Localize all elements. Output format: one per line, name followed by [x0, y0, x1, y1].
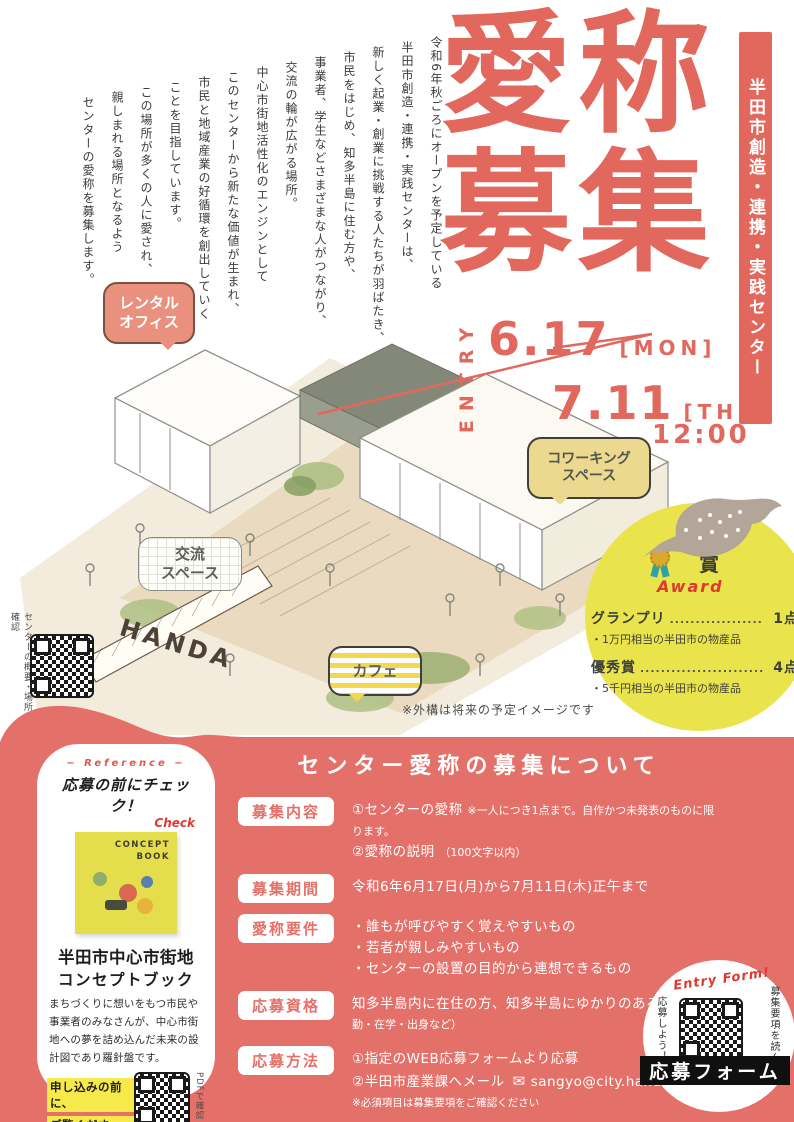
award-grand-prize-row: グランプリ .................. 1点	[591, 608, 794, 628]
requirement-bullet: ・若者が親しみやすいもの	[352, 938, 632, 959]
book-title-line2: コンセプトブック	[47, 968, 205, 990]
pdf-qr-code	[134, 1072, 190, 1122]
pdf-qr-caption: PDFで確認	[193, 1072, 205, 1122]
requirement-bullet: ・センターの設置の目的から連想できるもの	[352, 959, 632, 980]
content-line2-note: （100文字以内）	[439, 846, 526, 859]
row-requirements: 愛称要件 ・誰もが呼びやすく覚えやすいもの ・若者が親しみやすいもの ・センター…	[238, 914, 720, 980]
reference-headline: 応募の前にチェック！	[47, 774, 205, 816]
requirement-bullet: ・誰もが呼びやすく覚えやすいもの	[352, 917, 632, 938]
concept-book-cover: CONCEPT BOOK	[75, 832, 177, 934]
apply-note: ※必須項目は募集要項をご確認ください	[352, 1095, 707, 1111]
book-title-line1: 半田市中心市街地	[47, 944, 205, 968]
award-excellence-row: 優秀賞 ........................ 4点	[591, 657, 794, 677]
grand-prize-leader: ..................	[670, 613, 770, 626]
content-line2: ②愛称の説明	[352, 844, 435, 860]
grand-prize-name: グランプリ	[591, 608, 666, 628]
reference-tag: − Reference −	[47, 758, 205, 769]
entry-apply-text: 応募しよう！	[653, 996, 668, 1062]
entry-form-button[interactable]: 応募フォーム	[640, 1056, 790, 1085]
row-content: 募集内容 ①センターの愛称 ※一人につき1点まで。自作かつ未発表のものに限ります…	[238, 797, 720, 863]
entry-form-qr-code	[679, 998, 743, 1062]
period-text: 令和6年6月17日(月)から7月11日(木)正午まで	[352, 874, 649, 903]
poster: HANDA 半田市創造・連携・実践センター 愛称 募集 令和6年秋ごろにオープン…	[0, 0, 794, 1122]
excellence-desc: ・5千円相当の半田市の物産品	[591, 680, 794, 696]
apply-line2: ②半田市産業課へメール	[352, 1074, 505, 1090]
label-boshu-naiyo: 募集内容	[238, 797, 334, 826]
entry-form-circle: Entry Form! 募集要項を読んで 応募しよう！	[643, 960, 794, 1112]
excellence-leader: ........................	[640, 662, 769, 675]
content-line1: ①センターの愛称	[352, 802, 463, 818]
entry-form-script: Entry Form!	[672, 965, 771, 993]
panel-heading: センター愛称の募集について	[238, 748, 720, 780]
mail-icon	[505, 1074, 531, 1090]
highlight-line1: 申し込みの前に、	[47, 1078, 134, 1112]
reference-card: − Reference − 応募の前にチェック！ Check CONCEPT B…	[37, 744, 215, 1098]
row-period: 募集期間 令和6年6月17日(月)から7月11日(木)正午まで	[238, 874, 720, 903]
eligibility-text: 知多半島内に在住の方、知多半島にゆかりのある方	[352, 996, 674, 1012]
excellence-count: 4点	[773, 657, 794, 677]
label-obo-shikaku: 応募資格	[238, 991, 334, 1020]
grand-prize-desc: ・1万円相当の半田市の物産品	[591, 631, 794, 647]
grand-prize-count: 1点	[773, 608, 794, 628]
label-obo-hoho: 応募方法	[238, 1046, 334, 1075]
excellence-name: 優秀賞	[591, 657, 636, 677]
bird-icon	[642, 490, 787, 582]
concept-book-cover-title: CONCEPT BOOK	[115, 840, 170, 864]
label-aisho-yoken: 愛称要件	[238, 914, 334, 943]
reference-check: Check	[47, 816, 195, 830]
label-boshu-kikan: 募集期間	[238, 874, 334, 903]
highlight-line2: ご覧ください。	[47, 1116, 134, 1122]
book-description: まちづくりに想いをもつ市民や事業者のみなさんが、中心市街地への夢を詰め込んだ未来…	[49, 996, 203, 1067]
